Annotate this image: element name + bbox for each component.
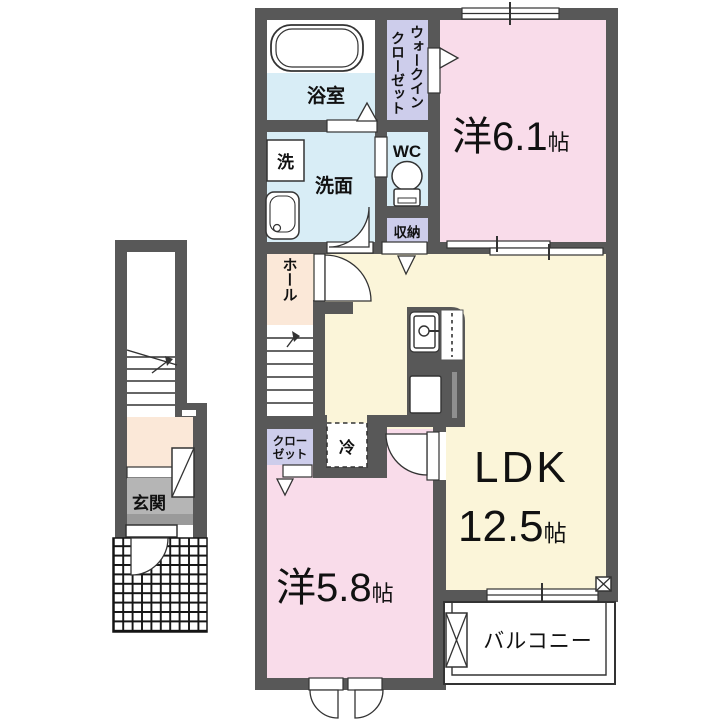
front-door <box>126 525 177 537</box>
bathtub <box>271 25 363 71</box>
shoe-cabinet <box>172 448 194 497</box>
storage-label: 収納 <box>394 224 421 240</box>
wall-vent <box>182 410 196 416</box>
bathroom-label: 浴室 <box>307 84 345 107</box>
stove <box>410 376 441 413</box>
walkin-closet-label-col1: ウォークイン <box>409 25 425 109</box>
washroom-label: 洗面 <box>315 174 353 197</box>
wall-segment <box>325 302 353 314</box>
wc-door <box>375 137 387 177</box>
wc-label: WC <box>393 142 421 161</box>
laundry-space <box>446 613 467 667</box>
closet-label-line1: クロー <box>273 435 308 448</box>
counter-edge <box>452 372 457 418</box>
counter-bar <box>441 310 463 360</box>
floorplan-svg: 玄関 <box>0 0 720 720</box>
wall-segment <box>375 206 440 218</box>
closet-label-line2: ゼット <box>273 447 308 461</box>
washbasin <box>266 192 299 239</box>
balcony-label: バルコニー <box>483 630 593 653</box>
main-building: 浴室 洗 洗面 WC ウォークイン クローゼット 収納 洋6.1帖 ホール LD… <box>255 2 618 718</box>
entrance-threshold <box>127 514 193 525</box>
wall-segment <box>255 8 267 690</box>
fridge-label: 冷 <box>339 438 355 457</box>
wall-segment <box>193 403 207 538</box>
kitchen-sink <box>410 312 439 352</box>
hall-label: ホール <box>281 257 298 302</box>
pipe-space-marker <box>596 577 611 591</box>
entrance-label: 玄関 <box>132 493 166 513</box>
wall-segment <box>606 8 618 602</box>
wall-segment <box>433 590 488 602</box>
floorplan-page: 玄関 <box>0 0 720 720</box>
wall-segment <box>313 300 325 417</box>
wall-segment <box>367 415 387 478</box>
washer-label: 洗 <box>277 152 294 172</box>
entrance-step <box>127 467 178 478</box>
walkin-closet-label-col2: クローゼット <box>390 31 406 115</box>
toilet <box>392 162 422 207</box>
ldk-label: LDK <box>474 443 569 492</box>
entrance-annex: 玄関 <box>113 240 207 632</box>
kitchen-counter <box>407 307 465 420</box>
wall-segment <box>115 403 127 538</box>
